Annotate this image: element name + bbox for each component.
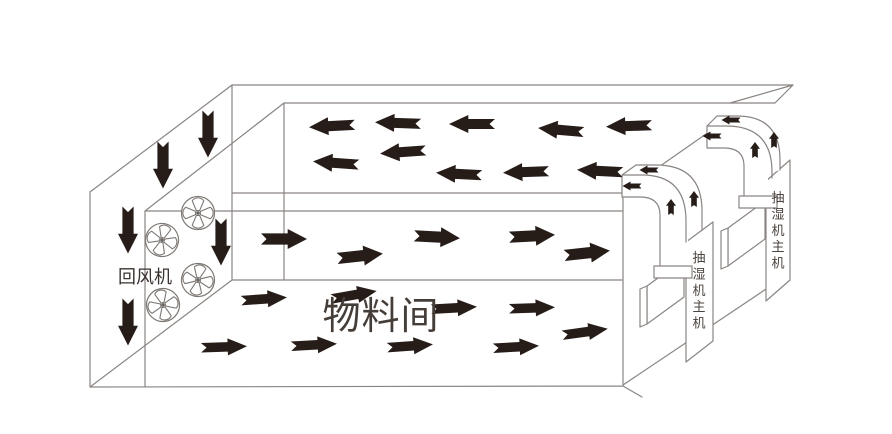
axial-fan-icon bbox=[142, 220, 182, 260]
flow-arrow-left bbox=[309, 116, 356, 136]
return-fan-label: 回风机 bbox=[118, 267, 172, 288]
flow-arrow-right bbox=[336, 244, 384, 269]
airflow-diagram: 抽湿机主机抽湿机主机 回风机 物料间 bbox=[0, 0, 892, 434]
flow-arrow-right bbox=[493, 337, 540, 356]
flow-arrow-down bbox=[198, 111, 218, 158]
unit-intake-side bbox=[640, 286, 647, 327]
dehumidifier-label-char: 机 bbox=[692, 317, 705, 332]
flow-arrow-left bbox=[449, 115, 495, 133]
axial-fan-icon bbox=[182, 197, 215, 230]
flow-arrow-left bbox=[312, 152, 359, 173]
dehumidifier-label-char: 机 bbox=[771, 257, 784, 272]
dehumidifier-label-char: 主 bbox=[692, 300, 705, 315]
dehumidifier-label-char: 机 bbox=[692, 284, 705, 299]
flow-arrow-right bbox=[291, 335, 338, 354]
flow-arrow-left bbox=[379, 141, 426, 162]
middle-supply-arrows bbox=[261, 225, 611, 269]
flow-arrow-left bbox=[606, 116, 653, 136]
dehumidifier-label-char: 湿 bbox=[771, 207, 784, 222]
dehumidifier-label-char: 机 bbox=[771, 224, 784, 239]
material-room-label: 物料间 bbox=[322, 294, 439, 338]
duct-collar bbox=[654, 266, 692, 278]
flow-arrow-right bbox=[201, 338, 248, 357]
flow-arrow-left bbox=[375, 113, 422, 133]
dehumidifier-label-char: 抽 bbox=[692, 251, 705, 266]
flow-arrow-right bbox=[563, 241, 611, 266]
flow-arrow-left bbox=[503, 162, 550, 182]
dehumidifier-label-char: 湿 bbox=[692, 267, 705, 282]
flow-arrow-down bbox=[118, 299, 138, 346]
flow-arrow-down bbox=[211, 219, 231, 266]
dehumidifier-label-char: 主 bbox=[771, 240, 784, 255]
dehumidifier-label: 抽湿机主机 bbox=[692, 251, 705, 332]
diagram-canvas: 抽湿机主机抽湿机主机 回风机 物料间 bbox=[0, 0, 892, 434]
unit-intake-box bbox=[728, 201, 765, 266]
axial-fan-icon bbox=[143, 285, 182, 324]
flow-arrow-right bbox=[386, 336, 433, 356]
ceiling-return-arrows bbox=[309, 113, 653, 184]
return-fan-bank bbox=[142, 197, 217, 325]
flow-arrow-right bbox=[561, 320, 609, 343]
flow-arrow-right bbox=[509, 225, 556, 247]
axial-fan-icon bbox=[179, 261, 217, 299]
unit-intake-side bbox=[721, 228, 728, 269]
flow-arrow-right bbox=[240, 289, 287, 309]
flow-arrow-right bbox=[414, 226, 461, 248]
flow-arrow-right bbox=[509, 299, 556, 318]
flow-arrow-down bbox=[118, 207, 138, 254]
dehumidifier-label: 抽湿机主机 bbox=[771, 191, 784, 272]
dehumidifier-label-char: 抽 bbox=[771, 191, 784, 206]
flow-arrow-left bbox=[577, 161, 624, 181]
flow-arrow-down bbox=[153, 142, 173, 189]
flow-arrow-left bbox=[436, 164, 483, 184]
flow-arrow-left bbox=[537, 119, 584, 141]
